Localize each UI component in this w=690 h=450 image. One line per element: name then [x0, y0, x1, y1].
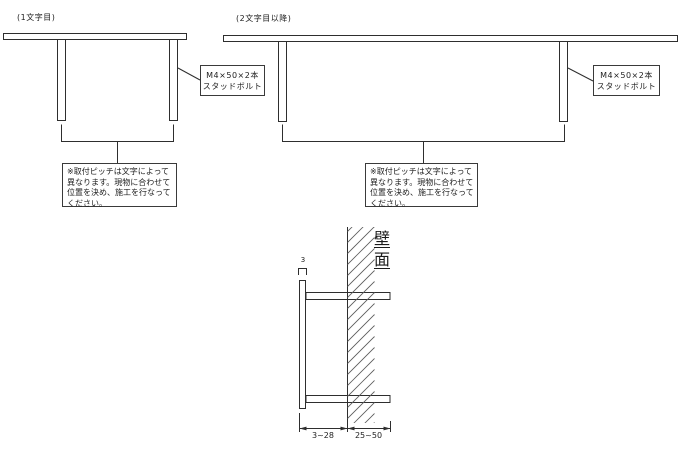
stud-bolt-right-2 [560, 42, 568, 122]
dim-plate-to-wall: 3~28 [301, 431, 345, 440]
letter-plate-side [300, 281, 306, 409]
caption-second-character-onward: (2文字目以降) [236, 13, 291, 24]
mounting-pitch-note-1: ※取付ピッチは文字によって 異なります。現物に合わせて 位置を決め、施工を行なっ… [62, 163, 177, 207]
mounting-pitch-note-2: ※取付ピッチは文字によって 異なります。現物に合わせて 位置を決め、施工を行なっ… [365, 163, 478, 207]
letter-plate-1 [4, 34, 187, 40]
dim-wall-depth: 25~50 [345, 431, 392, 440]
installation-diagram-page: (1文字目) (2文字目以降) M4×50×2本 スタッドボルト M4×50×2… [0, 0, 690, 450]
stud-bolt-left-1 [58, 40, 66, 121]
caption-first-character: (1文字目) [17, 12, 55, 23]
plate-thickness-value: 3 [295, 256, 311, 264]
letter-plate-2 [224, 36, 678, 42]
stud-bolt-right-1 [170, 40, 178, 121]
leader-line-1 [178, 68, 200, 80]
wall-surface-label: 壁面 [373, 228, 391, 270]
line-art [0, 0, 690, 450]
stud-bolt-left-2 [279, 42, 287, 122]
bracket-2 [283, 125, 565, 164]
bracket-1 [62, 125, 174, 164]
letter-front-view-1 [4, 34, 187, 121]
wall-hatching [347, 204, 375, 450]
stud-bolt-label-box-1: M4×50×2本 スタッドボルト [200, 65, 265, 96]
leader-line-2 [568, 68, 593, 81]
stud-bolt-label-box-2: M4×50×2本 スタッドボルト [593, 65, 660, 96]
thickness-dim-mark [299, 269, 307, 276]
